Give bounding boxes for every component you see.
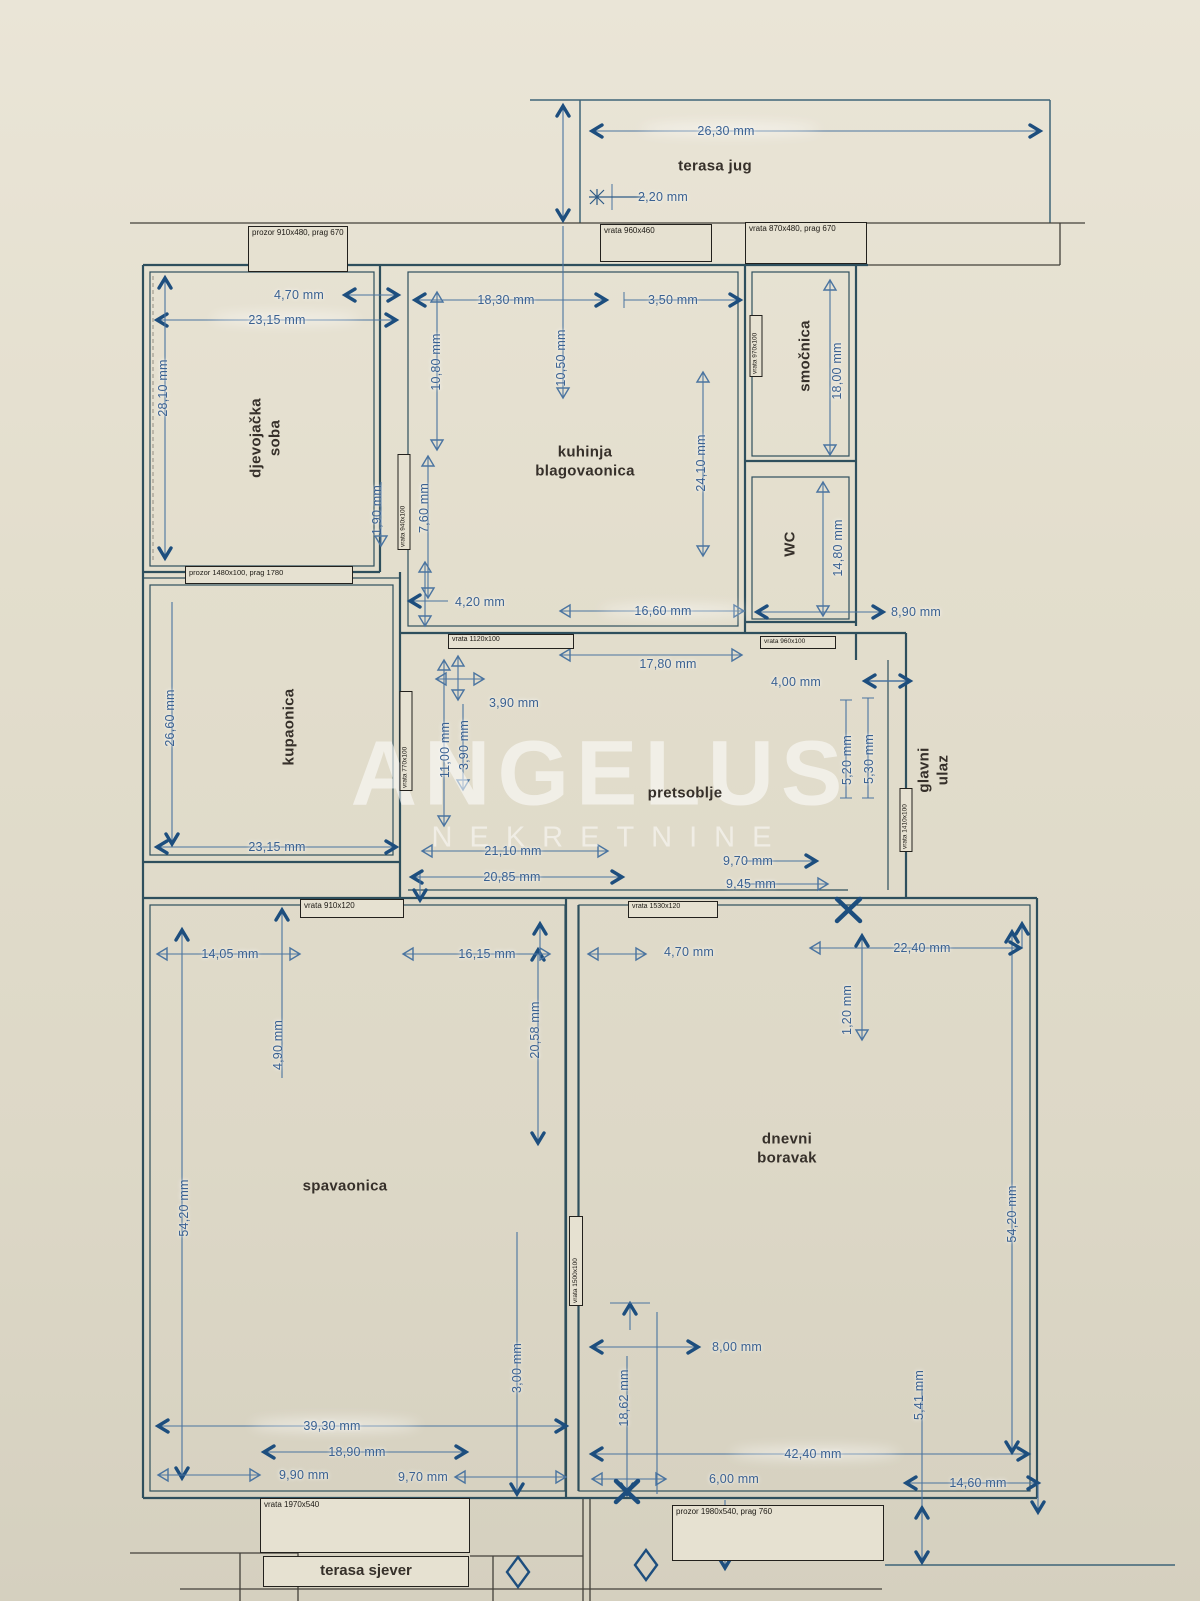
room-label-wc: WC (782, 531, 801, 557)
dim-label: 3,00 mm (510, 1343, 524, 1393)
dim-label: 1,90 mm (370, 485, 384, 535)
room-label-dnevni-boravak: dnevni boravak (745, 1130, 829, 1168)
dim-label: 14,05 mm (201, 947, 258, 961)
room-label-glavni-ulaz: glavni ulaz (915, 743, 953, 797)
dim-label: 9,45 mm (726, 877, 776, 891)
dim-label: 4,20 mm (455, 595, 505, 609)
dim-label: 22,40 mm (893, 941, 950, 955)
opening-label-vrata-1530: vrata 1530x120 (628, 901, 718, 918)
dim-label: 17,80 mm (639, 657, 696, 671)
dim-label: 16,60 mm (634, 604, 691, 618)
dim-label: 4,70 mm (274, 288, 324, 302)
room-label-pretsoblje: pretsoblje (648, 785, 723, 804)
dim-label: 26,30 mm (697, 124, 754, 138)
dim-label: 18,00 mm (830, 342, 844, 399)
dim-label: 1,20 mm (840, 985, 854, 1035)
room-label-spavaonica: spavaonica (303, 1178, 388, 1197)
opening-label-vrata-1500: vrata 1500x100 (569, 1216, 583, 1306)
dim-label: 18,62 mm (617, 1369, 631, 1426)
dim-label: 3,90 mm (489, 696, 539, 710)
opening-label-prozor-1480: prozor 1480x100, prag 1780 (185, 566, 353, 584)
dim-label: 11,00 mm (438, 722, 452, 778)
room-label-djevojacka-soba: djevojačka soba (247, 392, 285, 484)
room-label-terasa-sjever: terasa sjever (263, 1556, 469, 1587)
dim-label: 6,00 mm (709, 1472, 759, 1486)
dim-label: 39,30 mm (303, 1419, 360, 1433)
dim-label: 4,00 mm (771, 675, 821, 689)
dim-label: 2,20 mm (638, 190, 688, 204)
dim-label: 21,10 mm (484, 844, 541, 858)
dim-label: 54,20 mm (177, 1179, 191, 1236)
opening-label-prozor-910: prozor 910x480, prag 670 (248, 226, 348, 272)
bold-arrow-crosses (616, 899, 860, 1502)
opening-label-vrata-940: vrata 940x100 (398, 454, 411, 550)
dim-label: 9,70 mm (398, 1470, 448, 1484)
dim-label: 23,15 mm (248, 313, 305, 327)
opening-label-vrata-960x460: vrata 960x460 (600, 224, 712, 262)
room-label-kuhinja: kuhinja blagovaonica (520, 443, 650, 481)
room-label-smocnica: smočnica (797, 320, 816, 392)
opening-label-prozor-1980: prozor 1980x540, prag 760 (672, 1505, 884, 1561)
dim-label: 5,30 mm (862, 734, 876, 784)
dim-label: 4,90 mm (271, 1020, 285, 1070)
opening-label-vrata-960x100: vrata 960x100 (760, 636, 836, 649)
dim-label: 20,85 mm (483, 870, 540, 884)
opening-label-vrata-1120: vrata 1120x100 (448, 634, 574, 649)
dim-label: 14,80 mm (831, 519, 845, 576)
opening-label-vrata-1970: vrata 1970x540 (260, 1498, 470, 1553)
opening-label-vrata-870: vrata 870x480, prag 670 (745, 222, 867, 264)
opening-label-vrata-910x120: vrata 910x120 (300, 899, 404, 918)
dim-label: 18,30 mm (477, 293, 534, 307)
dim-label: 3,50 mm (648, 293, 698, 307)
dim-label: 3,90 mm (457, 720, 471, 770)
dim-label: 8,90 mm (891, 605, 941, 619)
dim-label: 7,60 mm (417, 483, 431, 533)
dim-label: 42,40 mm (784, 1447, 841, 1461)
floorplan-page: ANGELUS NEKRETNINE terasa jug djevojačka… (0, 0, 1200, 1601)
dim-label: 20,58 mm (528, 1001, 542, 1058)
opening-label-vrata-770: vrata 770x100 (400, 691, 413, 791)
terrace-lines (530, 100, 1175, 1565)
dim-label: 10,50 mm (554, 329, 568, 386)
dim-label: 26,60 mm (163, 689, 177, 746)
dim-label: 4,70 mm (664, 945, 714, 959)
dim-label: 18,90 mm (328, 1445, 385, 1459)
dim-label: 28,10 mm (156, 359, 170, 416)
dim-label: 10,80 mm (429, 333, 443, 390)
opening-label-vrata-1410: vrata 1410x100 (900, 788, 913, 852)
dim-label: 14,60 mm (949, 1476, 1006, 1490)
dim-label: 5,20 mm (840, 735, 854, 785)
dim-label: 24,10 mm (694, 434, 708, 491)
room-label-terasa-jug: terasa jug (678, 158, 752, 177)
dim-label: 8,00 mm (712, 1340, 762, 1354)
dim-label: 9,90 mm (279, 1468, 329, 1482)
room-label-kupaonica: kupaonica (281, 689, 300, 766)
dim-label: 54,20 mm (1005, 1185, 1019, 1242)
dim-label: 23,15 mm (248, 840, 305, 854)
opening-label-vrata-970: vrata 970x100 (750, 315, 763, 377)
dim-label: 9,70 mm (723, 854, 773, 868)
dim-label: 16,15 mm (458, 947, 515, 961)
dim-label: 5,41 mm (912, 1370, 926, 1420)
